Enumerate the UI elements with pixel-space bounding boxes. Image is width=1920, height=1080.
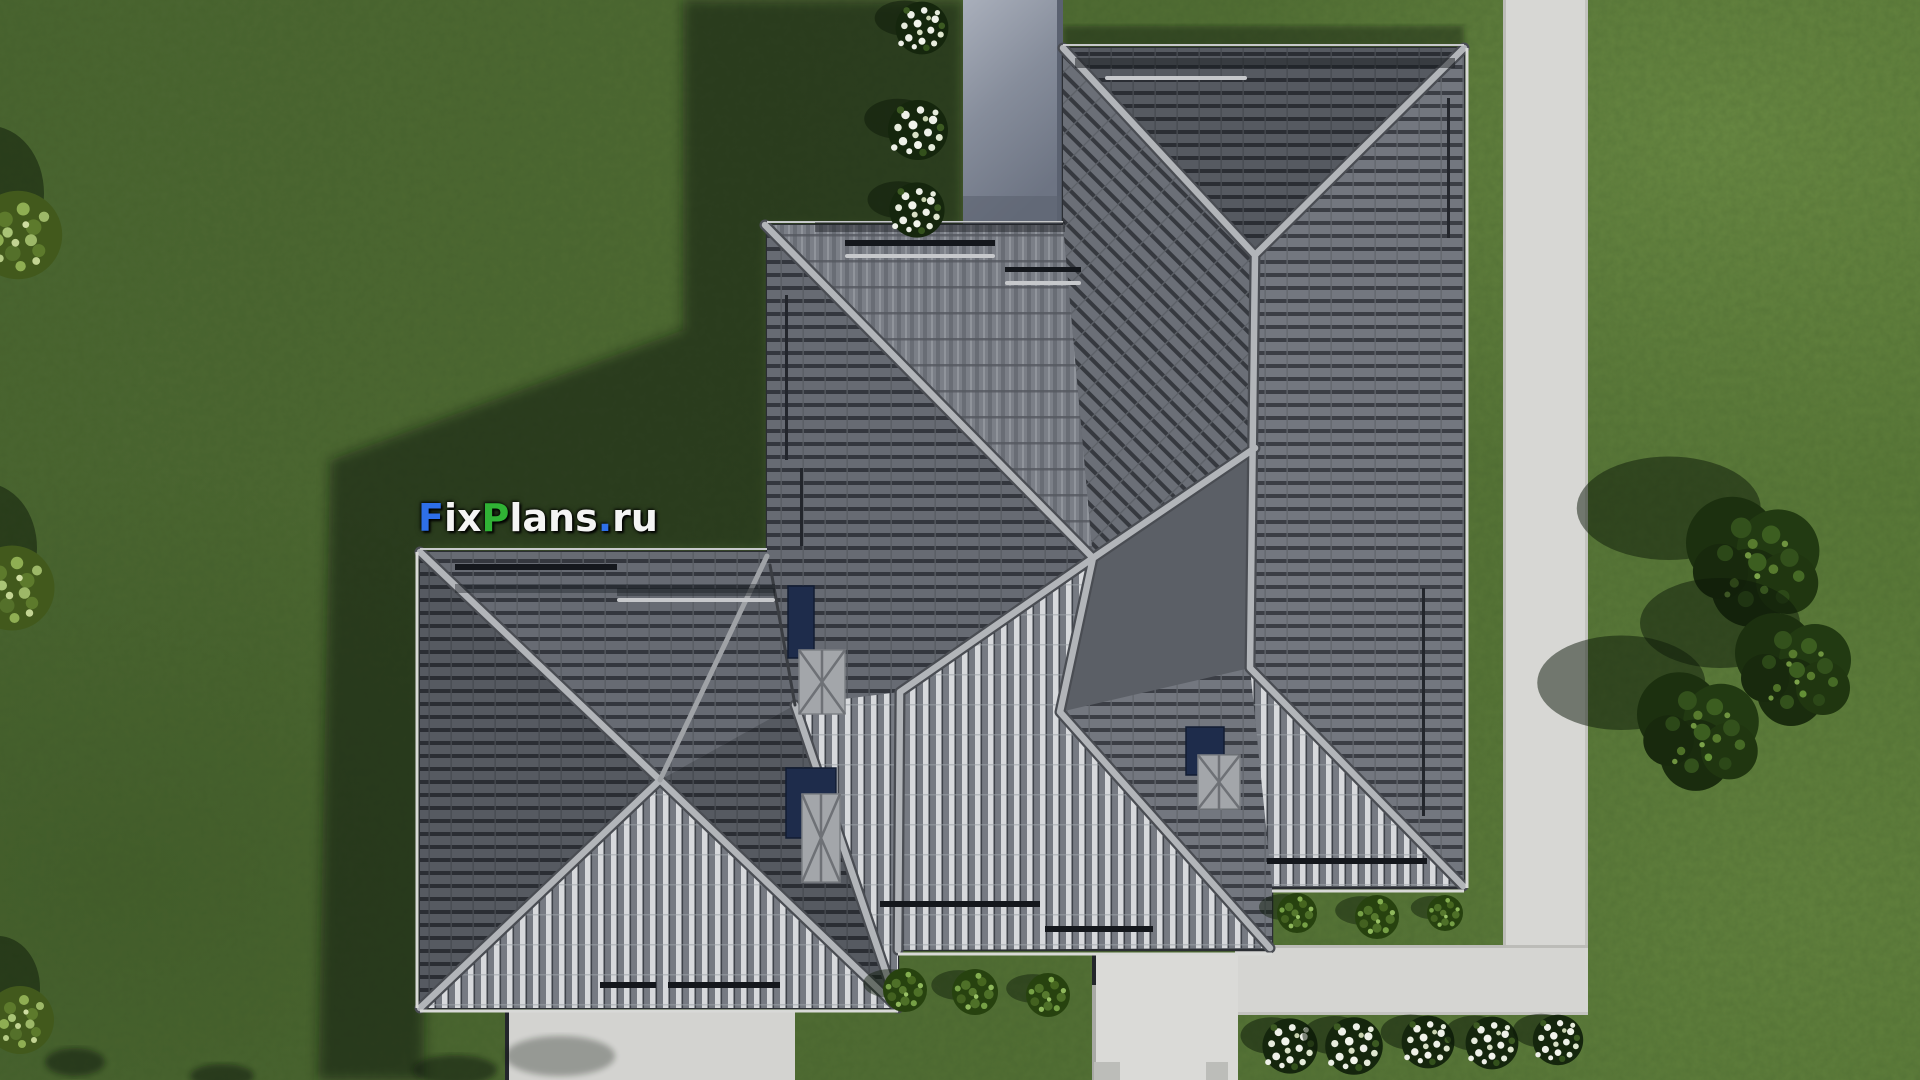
- walkway-vertical: [1503, 0, 1588, 1015]
- watermark-logo: FixPlans.ru: [418, 496, 658, 540]
- scene-canvas: [0, 0, 1920, 1080]
- patio-step-left: [1094, 1062, 1120, 1080]
- aerial-house-render: FixPlans.ru: [0, 0, 1920, 1080]
- walkway-horizontal: [1235, 945, 1588, 1015]
- garden-wall: [963, 0, 1063, 228]
- watermark-segment: .: [598, 496, 612, 540]
- watermark-segment: ix: [444, 496, 482, 540]
- watermark-segment: P: [482, 496, 510, 540]
- front-patio: [1092, 955, 1238, 1080]
- patio-step-right: [1206, 1062, 1228, 1080]
- watermark-segment: F: [418, 496, 444, 540]
- watermark-segment: lans: [509, 496, 597, 540]
- watermark-segment: ru: [612, 496, 658, 540]
